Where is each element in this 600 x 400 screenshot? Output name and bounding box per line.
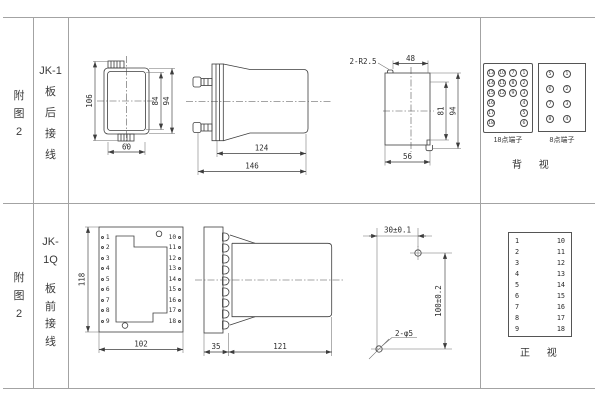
terminal-row: 8	[101, 306, 115, 317]
terminal-point: 11	[498, 79, 506, 87]
table-row: 110	[515, 237, 565, 248]
terminal-bump	[223, 288, 230, 296]
table-row: 413	[515, 270, 565, 281]
terminal-number: 17	[169, 307, 176, 314]
terminal-point: 12	[498, 89, 506, 97]
terminal-number: 15	[169, 286, 176, 293]
terminal-number: 16	[169, 297, 176, 304]
dim-106: 106	[85, 94, 94, 108]
terminal-row: 2	[101, 243, 115, 254]
terminal-bump	[223, 244, 230, 252]
terminal-circle	[178, 288, 181, 291]
terminal-point: 17	[487, 109, 495, 117]
terminal-point: 8	[546, 115, 554, 123]
terminal-8-grid: 56781234	[538, 63, 586, 132]
jk1q-side-view: 35 121	[195, 227, 345, 356]
front-view-left-terminals: 123456789	[101, 232, 115, 328]
drawing-canvas: 106 84 94 60 124 146 2-R2.5	[0, 0, 600, 400]
dim-94-rear: 94	[449, 106, 458, 116]
terminal-row: 16	[165, 295, 181, 306]
rear-view-label: 背 视	[512, 156, 556, 171]
terminal-row: 3	[101, 253, 115, 264]
terminal-number: 10	[169, 234, 176, 241]
dim-146: 146	[245, 162, 259, 171]
terminal-number: 2	[106, 244, 110, 251]
terminal-circle	[101, 246, 104, 249]
terminal-number-table: 110211312413514615716817918	[508, 232, 572, 337]
table-cell-left: 4	[515, 270, 519, 281]
terminal-row: 15	[165, 285, 181, 296]
table-cell-right: 15	[557, 292, 565, 303]
front-view-right-terminals: 101112131415161718	[165, 232, 181, 328]
terminal-point: 16	[487, 99, 495, 107]
jk1-rear-view: 2-R2.5 48 81 94 56	[349, 54, 461, 166]
terminal-point: 9	[509, 89, 517, 97]
dim-2-phi5: 2-φ5	[395, 329, 413, 338]
terminal-number: 4	[106, 265, 110, 272]
dim-102: 102	[134, 340, 148, 349]
table-cell-left: 2	[515, 248, 519, 259]
label-2-R2.5: 2-R2.5	[349, 57, 376, 66]
terminal-circle	[101, 278, 104, 281]
terminal-point: 8	[509, 79, 517, 87]
mounting-hole-top	[156, 231, 162, 237]
table-row: 918	[515, 325, 565, 336]
table-cell-left: 9	[515, 325, 519, 336]
terminal-row: 5	[101, 274, 115, 285]
terminal-point: 2	[563, 85, 571, 93]
terminal-point: 6	[546, 85, 554, 93]
terminal-bump	[223, 299, 230, 307]
terminal-point: 10	[498, 69, 506, 77]
terminal-point: 18	[487, 119, 495, 127]
table-cell-left: 3	[515, 259, 519, 270]
table-row: 716	[515, 303, 565, 314]
terminal-circle	[178, 267, 181, 270]
table-cell-left: 7	[515, 303, 519, 314]
terminal-point: 6	[520, 119, 528, 127]
terminal-bumps	[223, 233, 230, 329]
terminal-row: 4	[101, 264, 115, 275]
table-cell-left: 5	[515, 281, 519, 292]
terminal-number: 9	[106, 318, 110, 325]
table-cell-left: 6	[515, 292, 519, 303]
table-cell-left: 8	[515, 314, 519, 325]
terminal-number: 6	[106, 286, 110, 293]
terminal-row: 18	[165, 316, 181, 327]
dim-56: 56	[403, 152, 413, 161]
dim-84: 84	[151, 96, 160, 106]
terminal-point: 5	[546, 70, 554, 78]
technical-drawing-sheet: { "left_column": { "row1_label": "附图2", …	[0, 0, 600, 400]
dim-35: 35	[211, 342, 220, 351]
dim-48: 48	[406, 54, 416, 63]
terminal-row: 14	[165, 274, 181, 285]
dim-121: 121	[273, 342, 287, 351]
terminal-point: 4	[563, 115, 571, 123]
terminal-row: 9	[101, 316, 115, 327]
terminal-point: 7	[509, 69, 517, 77]
terminal-bump	[223, 310, 230, 318]
terminal-circle	[101, 309, 104, 312]
terminal-bump	[223, 321, 230, 329]
terminal-circle	[178, 246, 181, 249]
terminal-number: 13	[169, 265, 176, 272]
terminal-point: 3	[563, 100, 571, 108]
table-cell-right: 18	[557, 325, 565, 336]
dim-118: 118	[78, 272, 87, 286]
dim-81: 81	[437, 106, 446, 115]
terminal-number: 8	[106, 307, 110, 314]
terminal-circle	[101, 299, 104, 302]
terminal-point: 13	[487, 69, 495, 77]
terminal-8-label: 8点端子	[538, 135, 586, 145]
terminal-circle	[178, 257, 181, 260]
mounting-hole-bottom	[122, 323, 128, 329]
terminal-row: 13	[165, 264, 181, 275]
terminal-18-grid: 131415161718101112789123456	[483, 63, 533, 133]
terminal-point: 3	[520, 89, 528, 97]
terminal-number: 11	[169, 244, 176, 251]
terminal-bump	[223, 266, 230, 274]
terminal-row: 17	[165, 306, 181, 317]
table-row: 312	[515, 259, 565, 270]
table-row: 615	[515, 292, 565, 303]
terminal-number: 3	[106, 255, 110, 262]
terminal-point: 1	[563, 70, 571, 78]
terminal-row: 7	[101, 295, 115, 306]
dim-30: 30±0.1	[384, 226, 411, 235]
table-row: 817	[515, 314, 565, 325]
terminal-point: 15	[487, 89, 495, 97]
terminal-circle	[178, 278, 181, 281]
terminal-circle	[178, 299, 181, 302]
table-cell-right: 11	[557, 248, 565, 259]
table-row: 514	[515, 281, 565, 292]
jk1-front-view: 106 84 94 60	[85, 56, 175, 155]
terminal-point: 1	[520, 69, 528, 77]
terminal-bump	[223, 277, 230, 285]
table-cell-left: 1	[515, 237, 519, 248]
terminal-number: 1	[106, 234, 110, 241]
terminal-point: 2	[520, 79, 528, 87]
terminal-point: 7	[546, 100, 554, 108]
terminal-number: 7	[106, 297, 110, 304]
terminal-bump	[223, 255, 230, 263]
terminal-circle	[101, 236, 104, 239]
dim-60: 60	[122, 143, 132, 152]
terminal-point: 4	[520, 99, 528, 107]
table-row: 211	[515, 248, 565, 259]
table-cell-right: 13	[557, 270, 565, 281]
terminal-row: 10	[165, 232, 181, 243]
terminal-18-label: 18点端子	[483, 135, 533, 145]
drilling-plan: 30±0.1 100±0.2 2-φ5	[363, 226, 452, 360]
terminal-point: 5	[520, 109, 528, 117]
table-cell-right: 14	[557, 281, 565, 292]
terminal-number: 5	[106, 276, 110, 283]
terminal-number: 18	[169, 318, 176, 325]
dim-124: 124	[255, 144, 269, 153]
table-cell-right: 16	[557, 303, 565, 314]
table-cell-right: 12	[557, 259, 565, 270]
terminal-row: 6	[101, 285, 115, 296]
terminal-number: 12	[169, 255, 176, 262]
jk1-side-view: 124 146	[186, 64, 332, 175]
table-cell-right: 10	[557, 237, 565, 248]
dim-94: 94	[162, 96, 171, 106]
terminal-circle	[101, 320, 104, 323]
terminal-circle	[101, 288, 104, 291]
terminal-circle	[178, 309, 181, 312]
terminal-row: 11	[165, 243, 181, 254]
terminal-circle	[101, 257, 104, 260]
terminal-point: 14	[487, 79, 495, 87]
terminal-circle	[178, 320, 181, 323]
terminal-circle	[101, 267, 104, 270]
terminal-row: 12	[165, 253, 181, 264]
front-view-label: 正 视	[520, 344, 564, 359]
terminal-number: 14	[169, 276, 176, 283]
terminal-row: 1	[101, 232, 115, 243]
dim-100: 100±0.2	[434, 285, 443, 317]
terminal-circle	[178, 236, 181, 239]
terminal-bump	[223, 233, 230, 241]
table-cell-right: 17	[557, 314, 565, 325]
